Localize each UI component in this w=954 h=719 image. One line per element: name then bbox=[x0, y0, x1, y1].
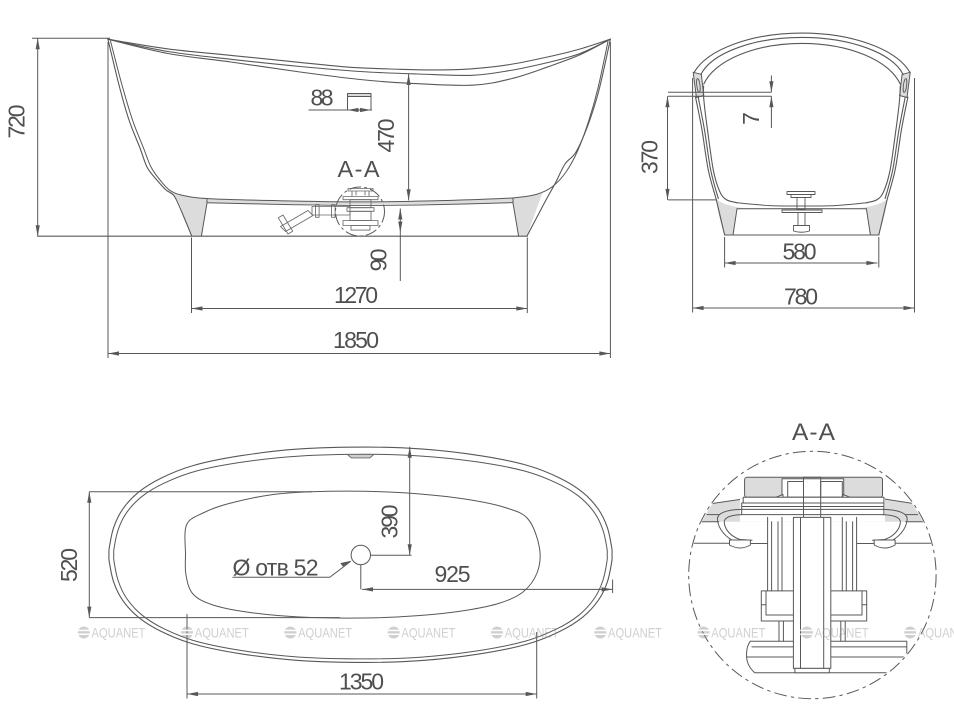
svg-text:470: 470 bbox=[373, 119, 399, 153]
svg-text:88: 88 bbox=[311, 85, 334, 111]
svg-text:370: 370 bbox=[637, 140, 663, 174]
svg-text:390: 390 bbox=[377, 505, 403, 539]
svg-text:1850: 1850 bbox=[333, 327, 379, 353]
svg-text:1350: 1350 bbox=[339, 669, 384, 695]
svg-text:AQUANET: AQUANET bbox=[92, 625, 146, 641]
svg-text:7: 7 bbox=[738, 112, 764, 125]
svg-text:520: 520 bbox=[56, 548, 82, 582]
svg-text:A-A: A-A bbox=[338, 156, 380, 182]
svg-text:580: 580 bbox=[783, 239, 817, 265]
svg-text:1270: 1270 bbox=[334, 282, 378, 308]
svg-text:780: 780 bbox=[784, 284, 818, 310]
svg-text:90: 90 bbox=[366, 249, 392, 272]
svg-text:925: 925 bbox=[435, 561, 471, 587]
svg-text:A-A: A-A bbox=[792, 419, 836, 446]
svg-text:Ø отв 52: Ø отв 52 bbox=[233, 554, 319, 580]
svg-text:720: 720 bbox=[4, 105, 30, 139]
